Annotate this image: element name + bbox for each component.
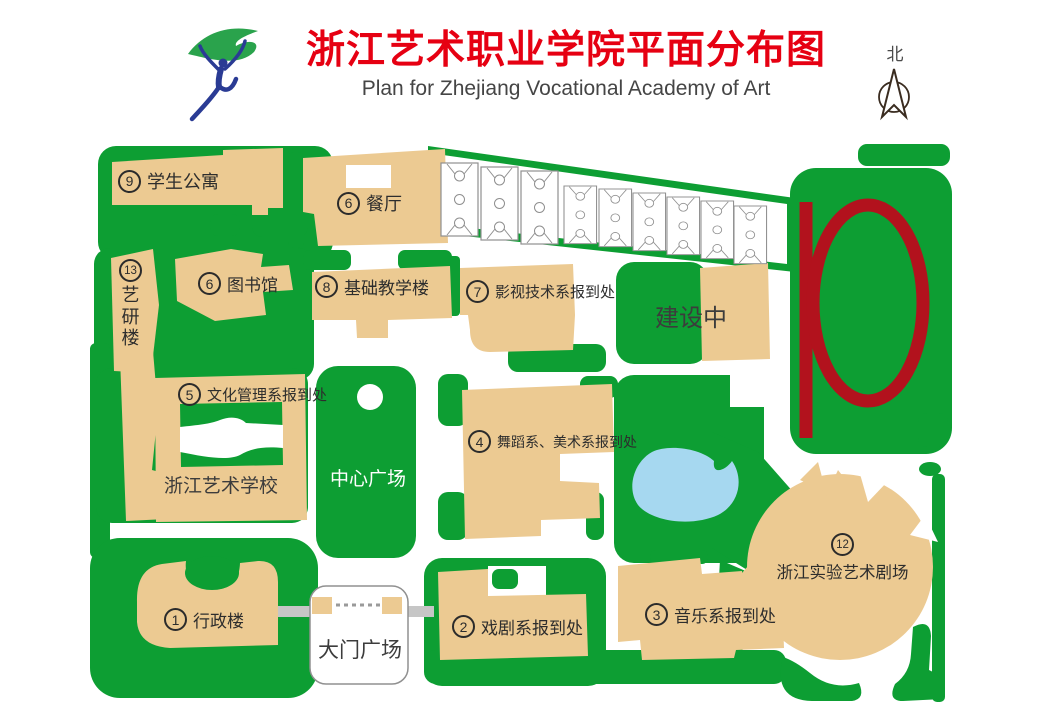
label-under-construction: 建设中 [655,298,727,333]
lawn-blob-a [781,657,862,701]
canteen-notch [346,165,391,188]
lawn-strip-canteen [288,152,304,248]
label-basic-teaching-building: 8 基础教学楼 [315,274,429,299]
page-subtitle: Plan for Zhejiang Vocational Academy of … [286,77,846,101]
label-number: 7 [466,280,489,303]
basketball-court [701,201,734,259]
label-text: 戏剧系报到处 [481,614,583,639]
label-number: 12 [831,533,854,556]
label-text: 舞蹈系、美术系报到处 [497,432,637,452]
label-text: 艺研楼 [121,285,141,350]
title-block: 浙江艺术职业学院平面分布图 Plan for Zhejiang Vocation… [286,30,846,101]
label-music-registration: 3 音乐系报到处 [645,602,776,627]
label-administration-building: 1 行政楼 [164,607,244,632]
label-text: 音乐系报到处 [674,602,776,627]
lawn-right-strip [932,474,945,702]
north-label: 北 [868,40,922,65]
label-number: 1 [164,608,187,631]
lawn-squircle-b2 [492,569,518,589]
pond-area-notch [730,373,766,407]
school-logo [186,24,270,124]
label-culture-mgmt-registration: 5 文化管理系报到处 [178,383,327,406]
label-number: 13 [119,259,142,282]
label-number: 8 [315,275,338,298]
label-art-research-building: 13 艺研楼 [119,259,142,350]
label-central-plaza: 中心广场 [330,464,406,491]
road-left [278,606,312,617]
label-film-tv-registration: 7 影视技术系报到处 [466,280,615,303]
lawn-small-3 [303,250,351,270]
label-dance-art-registration: 4 舞蹈系、美术系报到处 [468,430,637,453]
label-student-apartments: 9 学生公寓 [118,168,219,194]
gate-post-right [382,597,402,614]
label-number: 5 [178,383,201,406]
label-gate-plaza: 大门广场 [318,634,402,664]
label-number: 6 [337,192,360,215]
gate-post-left [312,597,332,614]
label-text: 餐厅 [366,190,402,216]
basketball-court [599,189,632,247]
label-number: 2 [452,615,475,638]
label-text: 行政楼 [193,607,244,632]
page-title: 浙江艺术职业学院平面分布图 [286,30,846,73]
label-text: 影视技术系报到处 [495,281,615,302]
label-text: 学生公寓 [147,168,219,194]
compass: 北 [868,40,922,126]
basketball-court [441,163,478,236]
label-library: 6 图书馆 [198,271,278,296]
label-zhejiang-art-school: 浙江艺术学校 [164,471,278,498]
label-number: 3 [645,603,668,626]
lawn-right-hook [919,462,941,476]
label-text: 基础教学楼 [344,274,429,299]
basketball-court [734,206,767,264]
basketball-court [633,193,666,251]
label-number: 6 [198,272,221,295]
basketball-court [481,167,518,240]
label-drama-registration: 2 戏剧系报到处 [452,614,583,639]
label-text: 文化管理系报到处 [207,384,327,405]
fountain [357,384,383,410]
lawn-small-1 [210,214,240,236]
logo-ribbon-icon [188,29,258,61]
lawn-right-block [918,413,948,447]
lawn-top-right [858,144,950,166]
building-7-shape [460,264,575,352]
basketball-court [667,197,700,255]
campus-map-page: 浙江艺术职业学院平面分布图 Plan for Zhejiang Vocation… [0,0,1056,720]
building-4-shape [462,384,614,539]
label-number: 9 [118,170,141,193]
compass-icon [872,65,918,121]
label-canteen: 6 餐厅 [337,190,402,216]
label-experimental-theatre: 12 浙江实验艺术剧场 [770,533,915,583]
label-text: 图书馆 [227,271,278,296]
basketball-court [564,186,597,244]
basketball-court [521,171,558,244]
label-number: 4 [468,430,491,453]
label-text: 浙江实验艺术剧场 [777,559,909,583]
lawn-b4-c [438,492,468,540]
lawn-ellipse-b1 [185,556,239,590]
